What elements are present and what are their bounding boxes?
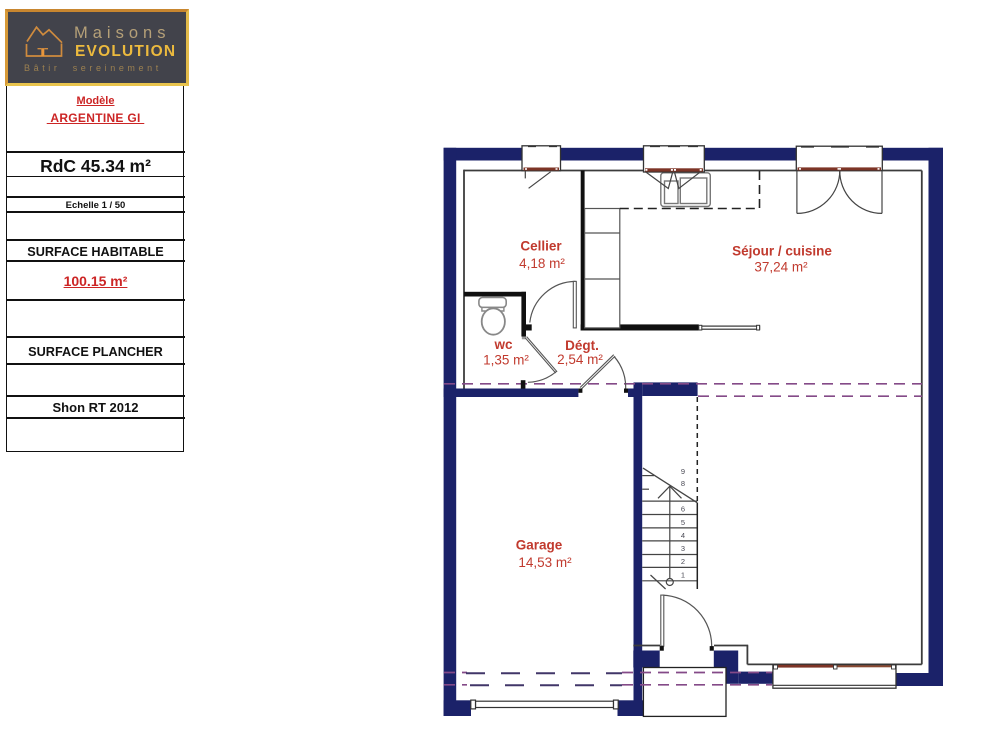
svg-text:Cellier: Cellier (520, 239, 562, 254)
svg-text:37,24 m²: 37,24 m² (754, 260, 808, 275)
svg-text:Dégt.: Dégt. (565, 338, 599, 353)
svg-text:1,35 m²: 1,35 m² (483, 353, 529, 368)
svg-text:2: 2 (681, 557, 685, 566)
svg-text:9: 9 (681, 467, 685, 476)
svg-text:wc: wc (493, 337, 513, 352)
svg-text:4,18 m²: 4,18 m² (519, 256, 565, 271)
svg-text:2,54 m²: 2,54 m² (557, 352, 603, 367)
svg-text:Garage: Garage (516, 538, 563, 553)
svg-text:Séjour / cuisine: Séjour / cuisine (732, 244, 832, 259)
svg-text:6: 6 (681, 505, 685, 514)
svg-text:4: 4 (681, 531, 685, 540)
svg-text:1: 1 (681, 570, 685, 579)
svg-text:5: 5 (681, 518, 685, 527)
svg-text:8: 8 (681, 479, 685, 488)
svg-text:14,53 m²: 14,53 m² (518, 555, 572, 570)
svg-text:3: 3 (681, 544, 685, 553)
